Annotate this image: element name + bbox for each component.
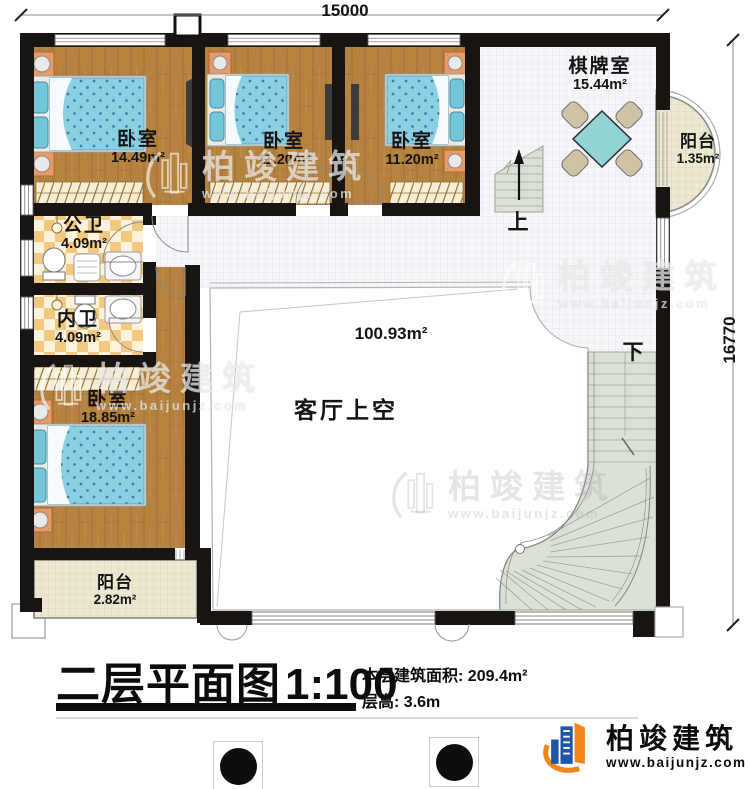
stair-down-label: 下	[623, 336, 644, 366]
column-dot	[220, 748, 257, 785]
plan-stats: 本层建筑面积: 209.4m² 层高: 3.6m	[362, 664, 527, 717]
column-symbol	[429, 737, 479, 787]
room-label-chess-room: 棋牌室 15.44m²	[568, 57, 631, 94]
chimney	[175, 15, 200, 36]
room-label-bedroom-top-left: 卧室 14.49m²	[111, 130, 165, 167]
room-label-inner-bath: 内卫 4.09m²	[55, 310, 101, 347]
title-underline	[56, 703, 356, 711]
room-label-bedroom-top-mid: 卧室 11.20m²	[257, 132, 310, 169]
brand-logo: 柏竣建筑 www.baijunjz.com	[538, 716, 747, 778]
dimension-top: 15000	[321, 1, 368, 21]
room-label-bedroom-top-right: 卧室 11.20m²	[385, 132, 438, 169]
baijun-logo-icon	[538, 716, 598, 778]
living-void-name: 客厅上空	[294, 391, 398, 425]
column-symbol	[213, 741, 263, 789]
living-void-area: 100.93m²	[355, 324, 428, 344]
floor-height-row: 层高: 3.6m	[362, 690, 527, 716]
column-dot	[436, 744, 473, 781]
room-label-bedroom-large: 卧室 18.85m²	[81, 390, 135, 427]
room-label-balcony-right: 阳台 1.35m²	[677, 133, 720, 167]
room-label-balcony-bottom: 阳台 2.82m²	[94, 574, 137, 608]
dimension-right: 16770	[720, 310, 740, 370]
room-label-public-bath: 公卫 4.09m²	[61, 216, 107, 253]
floor-plan-page: 卧室 14.49m² 卧室 11.20m² 卧室 11.20m² 棋牌室 15.…	[0, 0, 750, 789]
stair-up-label: 上	[508, 206, 529, 236]
floor-area-row: 本层建筑面积: 209.4m²	[362, 664, 527, 690]
